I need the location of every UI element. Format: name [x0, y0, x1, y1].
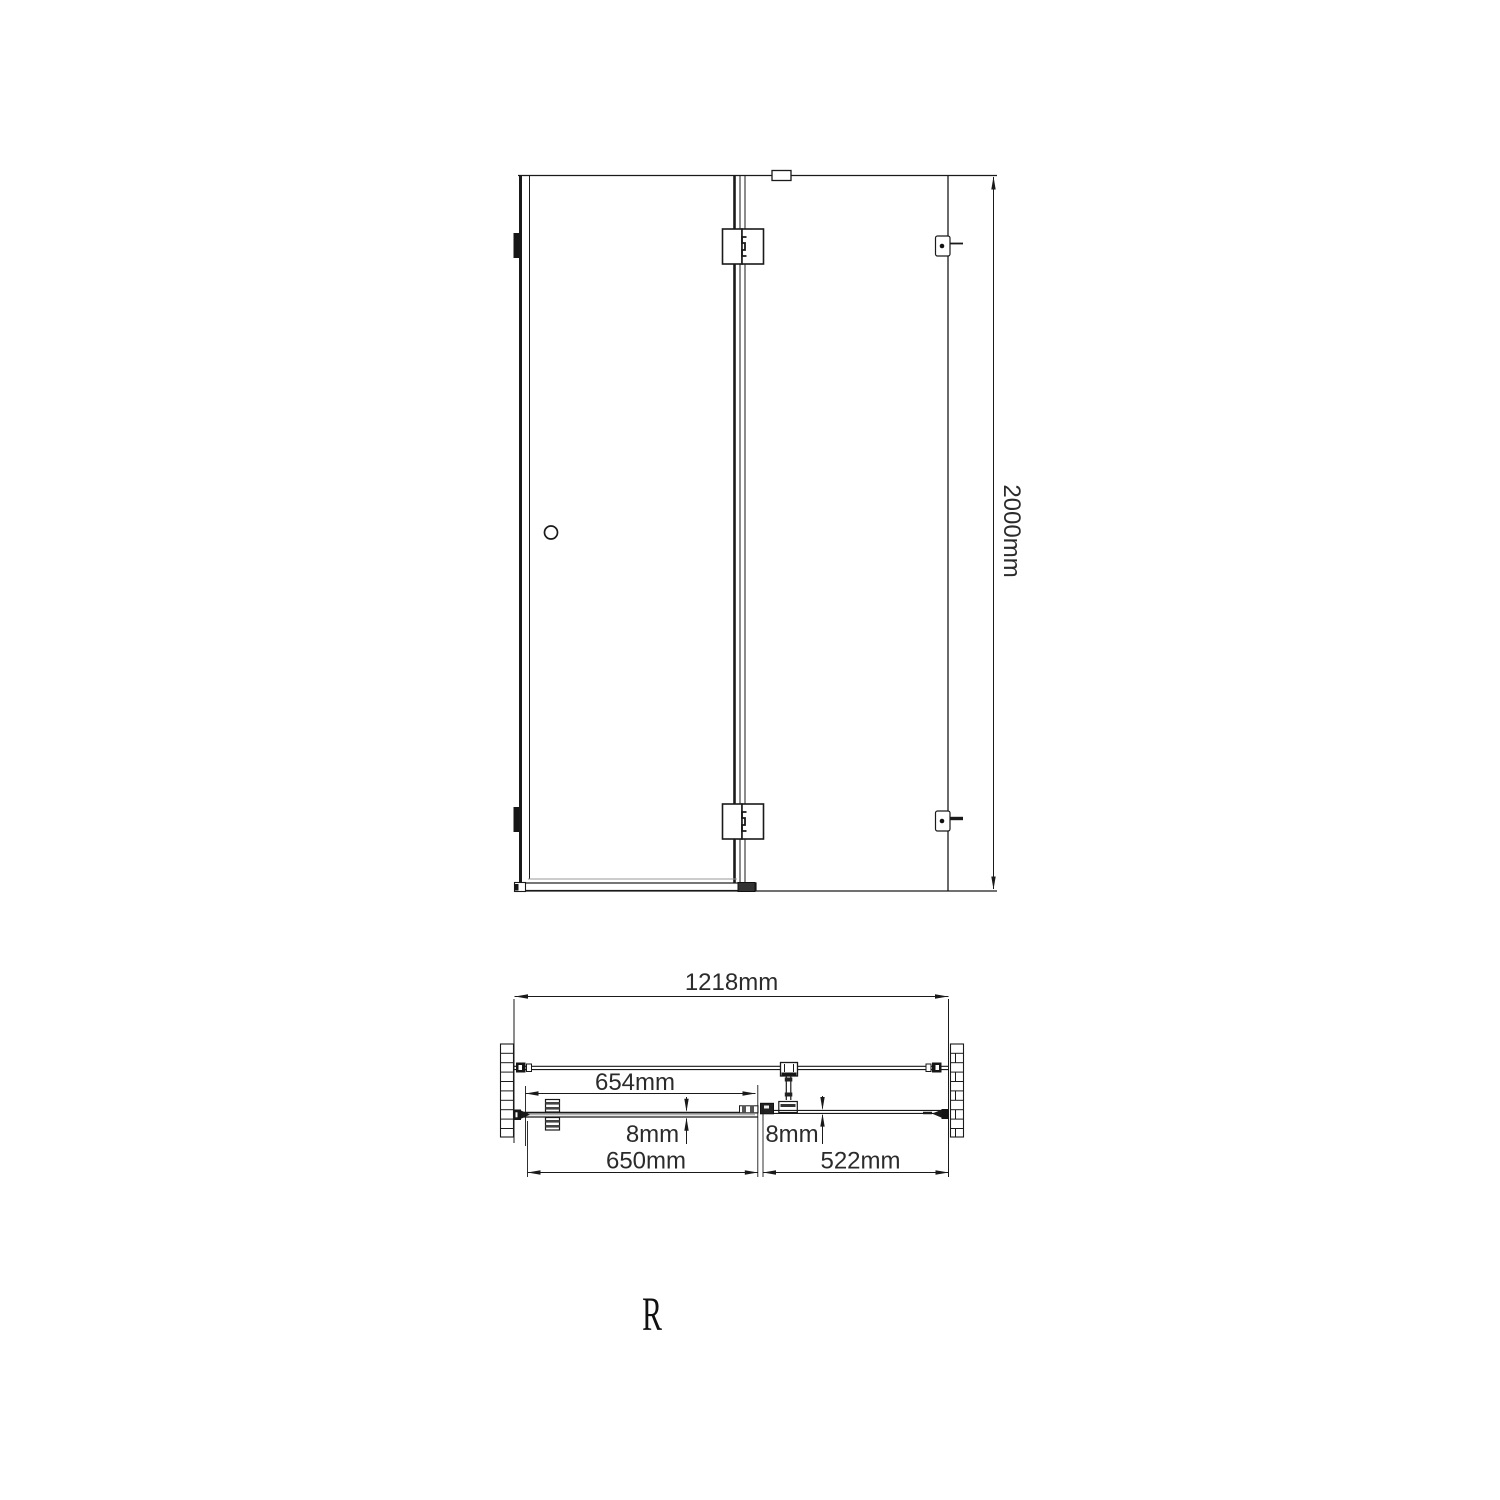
dimension-total-width: 1218mm — [515, 969, 949, 999]
door-knob-icon — [545, 526, 558, 539]
height-dimension-label: 2000mm — [998, 484, 1025, 577]
orientation-letter: R — [642, 1287, 662, 1341]
support-bar-glass-connector-icon — [779, 1063, 798, 1113]
support-bar — [514, 1063, 948, 1113]
wall-bracket-top-icon — [936, 236, 964, 256]
support-bar-wall-fitting-left-icon — [516, 1063, 532, 1073]
support-bar-wall-fitting-right-icon — [926, 1063, 942, 1073]
hinge-top-icon — [723, 229, 764, 264]
hinge-plan-icon — [740, 1103, 774, 1114]
wall-left-hatch — [501, 1044, 514, 1137]
door-glass-plan — [514, 1113, 758, 1117]
bottom-sill — [515, 879, 757, 892]
support-bar-clamp-icon — [772, 171, 791, 181]
hinge-bottom-icon — [723, 804, 764, 839]
wall-bracket-bottom-icon — [936, 811, 964, 831]
door-glass-thickness-label: 8mm — [626, 1121, 679, 1148]
technical-drawing-canvas: 2000mm — [0, 0, 1500, 1500]
plan-view: 1218mm 654mm 8mm 8mm — [501, 969, 964, 1177]
dimension-height: 2000mm — [991, 177, 1025, 890]
glass-panels-outline — [514, 175, 997, 891]
wall-right-hatch — [951, 1044, 964, 1137]
total-width-label: 1218mm — [685, 969, 778, 996]
technical-drawing-page: 2000mm — [0, 0, 1500, 1500]
wall-profile-left-plan-icon — [514, 1110, 531, 1121]
side-glass-thickness-label: 8mm — [765, 1121, 818, 1148]
wall-profile-bottom-block — [514, 807, 520, 832]
door-glass-width-label: 654mm — [595, 1069, 675, 1096]
elevation-view: 2000mm — [514, 171, 1026, 892]
door-width-label: 650mm — [606, 1148, 686, 1175]
side-panel-width-label: 522mm — [820, 1148, 900, 1175]
wall-profile-top-block — [514, 233, 520, 258]
dimension-door-glass-thickness: 8mm — [626, 1097, 689, 1148]
